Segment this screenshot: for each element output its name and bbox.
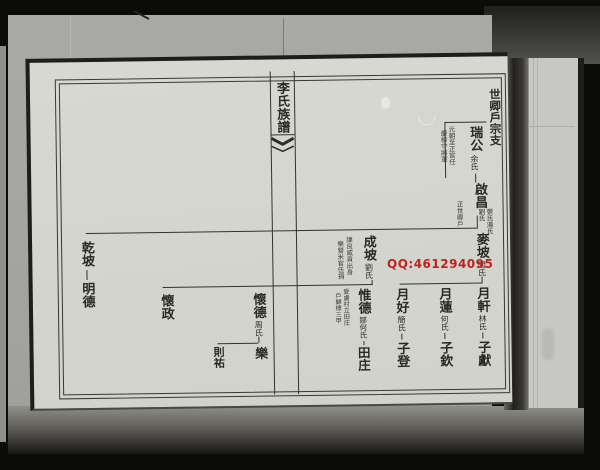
gen5-name-ziqin: 子欽 [437,341,451,367]
connector-qianpo-child [86,270,87,280]
gen5-name-zixian: 子獻 [475,340,489,366]
gen4-name-weide: 惟德 [356,288,370,314]
genealogy-page-group: 李氏族譜 世卿戶宗支 瑞公 余氏 元朝至正官任 慶柳守將軍 啟昌 張氏湯氏 劉氏… [0,0,600,470]
gen4-annotation-weide-col2: 戶歸棣三甲 [334,293,341,324]
screenshot-root: 李氏族譜 世卿戶宗支 瑞公 余氏 元朝至正官任 慶柳守將軍 啟昌 張氏湯氏 劉氏… [0,0,600,470]
gen4-spouse-yuexuan: 林氏 [478,314,486,330]
gen1-annotation-col2: 慶柳守將軍 [439,130,446,163]
gen1-spouse: 余氏 [470,155,478,171]
gen5-name-zideng: 子登 [394,342,408,368]
gen4-name-yuehao: 月好 [394,288,408,314]
gen3-name-qianpo: 乾坡 [79,241,93,267]
gen5-name-zeyou: 則祐 [212,346,224,368]
gen4-name-huaizheng: 懷政 [159,294,173,320]
gen4-spouse-yuelian: 何氏 [440,315,448,331]
banner-title: 李氏族譜 [275,81,289,133]
gen5-name-le: 樂 [253,347,267,360]
qq-watermark: QQ:461294095 [387,257,493,271]
gen3-annotation-chengpo-col1: 諱良威貢出身 [345,236,352,275]
gen1-annotation-col1: 元朝至正官任 [447,126,454,165]
gen3-annotation-chengpo-col2: 樂營米官伍捐 [336,240,343,279]
section-header: 世卿戶宗支 [487,88,503,146]
gen3-name-chengpo: 成坡 [361,235,375,261]
gen4-name-mingde: 明德 [80,282,94,308]
gen4-name-huaide: 懷德 [251,293,265,319]
gen4-name-yuexuan: 月軒 [475,286,489,312]
connector-yuehao-child [401,334,402,340]
gen4-spouse-huaide: 周氏 [254,321,262,337]
gen4-spouse-yuehao: 簡氏 [397,316,405,332]
tree-riser-gen2 [477,216,478,228]
gen1-name: 瑞公 [467,126,481,152]
gen2-spouses-col2: 劉氏 [478,208,484,221]
tree-riser-huaide [258,337,259,343]
connector-yuexuan-child [482,333,483,339]
gen2-spouses-col1: 張氏湯氏 [486,208,493,234]
fishtail-icon [271,136,295,152]
gen1-gen2-connector [475,174,476,183]
gen2-annotation: 正世卿戶 [455,201,462,227]
gen4-spouse-weide: 鄒何氏 [359,316,367,339]
gen5-name-tianzhuang: 田庄 [357,346,370,371]
gen3-name-maipo: 麥坡 [474,232,488,258]
gen4-name-yuelian: 月蓮 [437,287,451,313]
gen4-annotation-weide-col1: 愛盧村立田庄 [342,288,349,325]
connector-yuelian-child [444,333,445,339]
connector-weide-child [363,341,364,345]
gen2-name: 啟昌 [472,182,486,208]
gen3-spouse-chengpo: 劉氏 [364,263,372,279]
